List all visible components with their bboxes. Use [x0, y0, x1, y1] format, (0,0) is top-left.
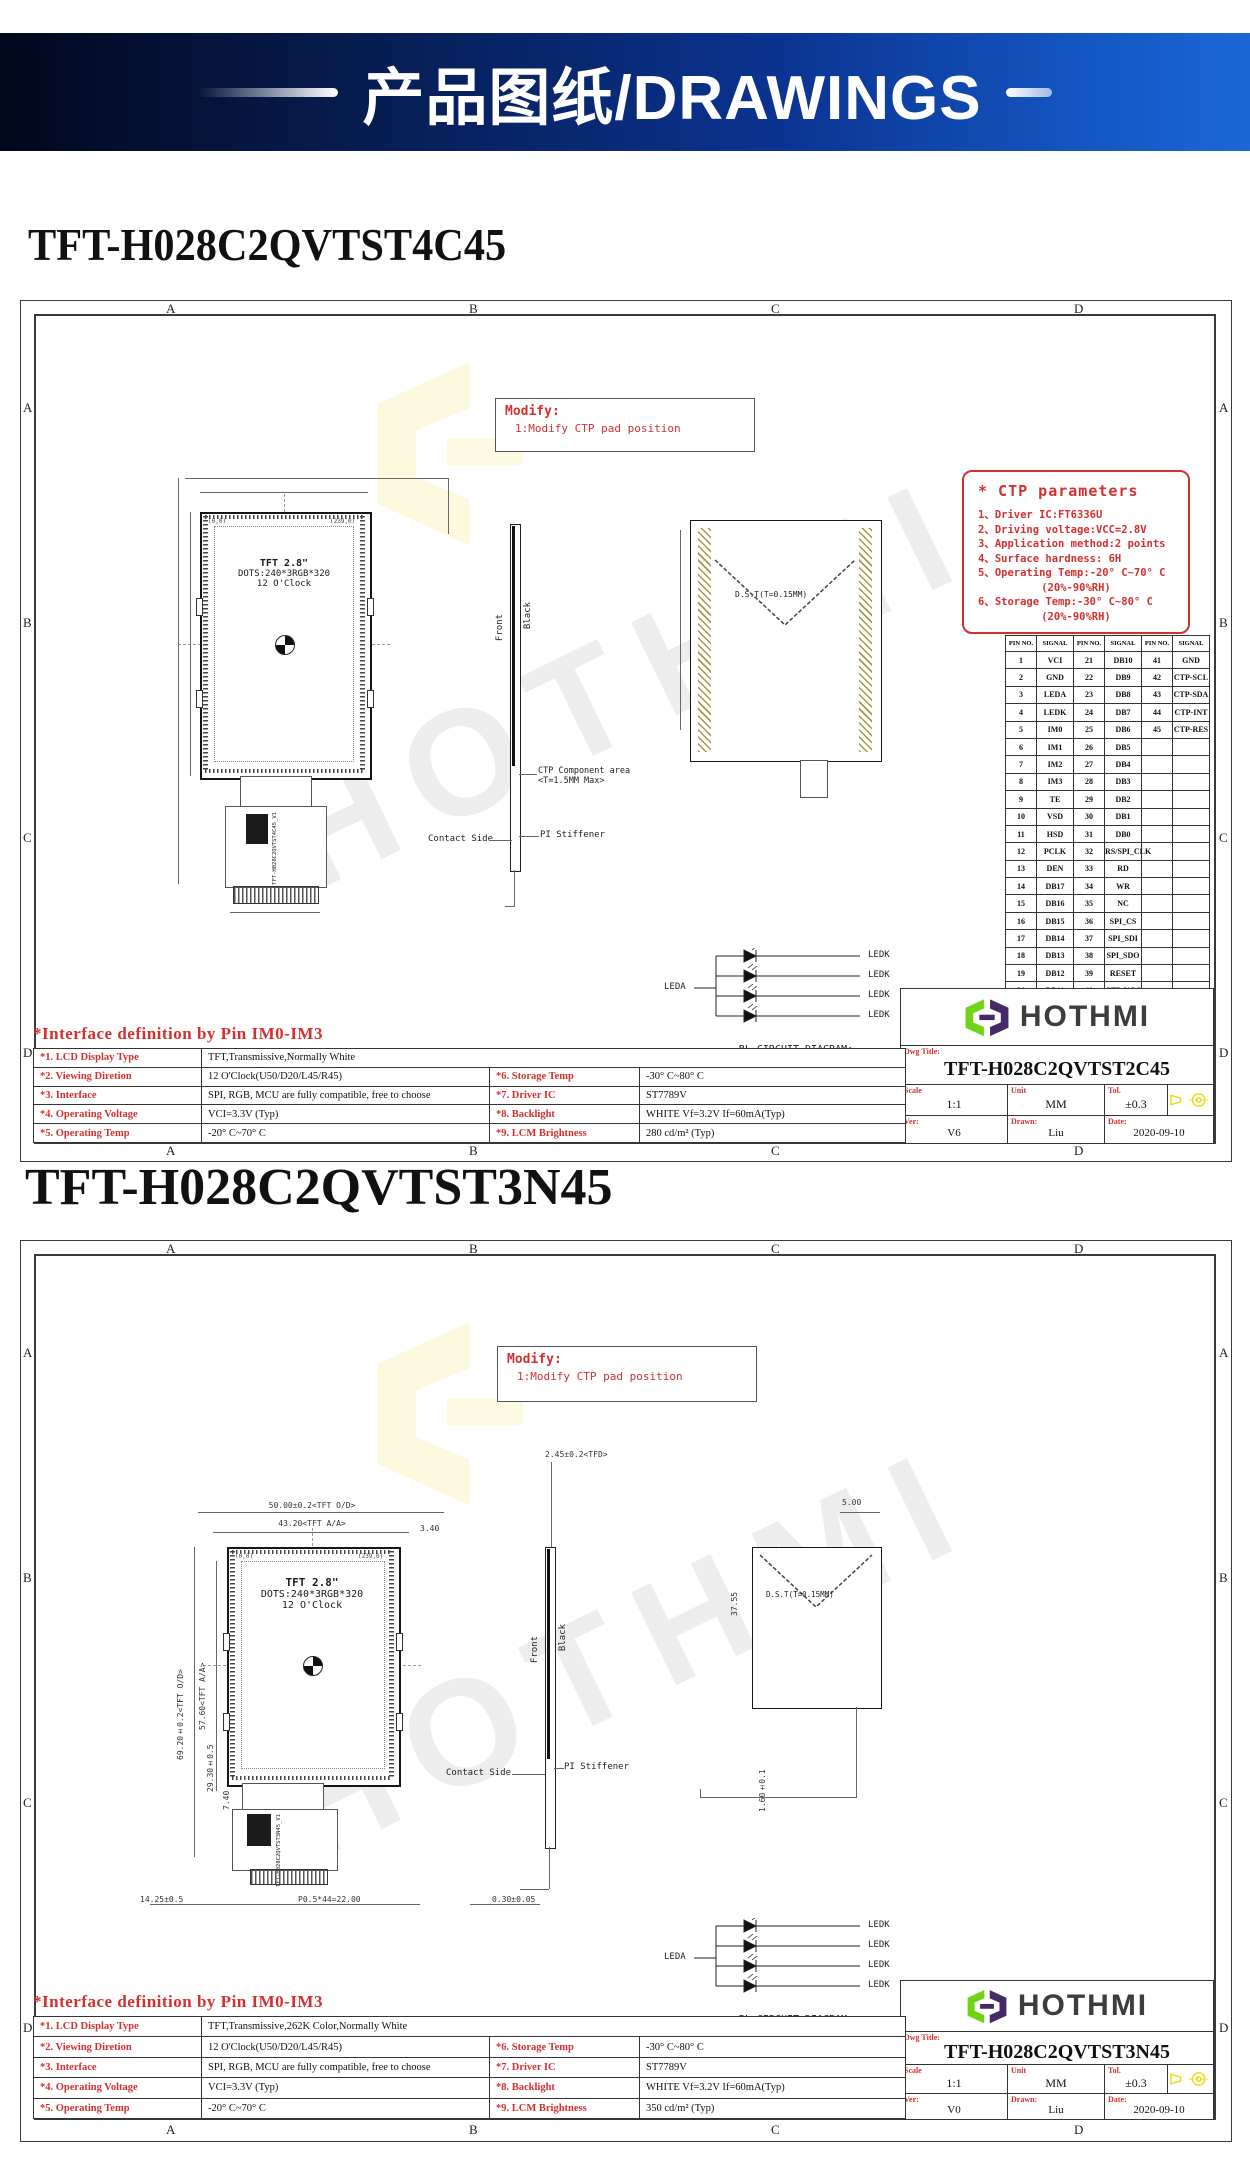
dim-fpc-height: 29.30±0.5	[206, 1722, 215, 1792]
dim-aa-height: 57.60<TFT A/A>	[198, 1600, 207, 1730]
sheet2-title: TFT-H028C2QVTST3N45	[25, 1158, 613, 1217]
sheet2-title-block: HOTHMI Dwg Title: TFT-H028C2QVTST3N45 Sc…	[900, 1980, 1214, 2120]
pi-stiffener-label: PI Stiffener	[564, 1762, 629, 1772]
ledk-label: LEDK	[868, 950, 890, 960]
pin-table-row: 6 IM1 26 DB5	[1006, 738, 1210, 755]
pin-table-row: 13 DEN 33 RD	[1006, 860, 1210, 877]
sheet1-modify-box: Modify: 1:Modify CTP pad position	[495, 398, 755, 452]
dwg-title-value: TFT-H028C2QVTST3N45	[901, 2041, 1213, 2064]
ledk-label: LEDK	[868, 1980, 890, 1990]
black-label: Black	[558, 1624, 568, 1651]
leda-label: LEDA	[664, 982, 686, 992]
bl-circuit-diagram	[692, 1918, 864, 1998]
interface-table-row: *1. LCD Display Type TFT,Transmissive,No…	[34, 1049, 906, 1068]
sheet2-interface-table: *1. LCD Display Type TFT,Transmissive,26…	[33, 2016, 906, 2119]
panel-text: TFT 2.8" DOTS:240*3RGB*320 12 O'Clock	[241, 1576, 383, 1611]
ledk-label: LEDK	[868, 1010, 890, 1020]
brand-name: HOTHMI	[1018, 1989, 1148, 2023]
ctp-parameters-title: * CTP parameters	[978, 482, 1174, 500]
modify-heading: Modify:	[507, 1352, 747, 1367]
sheet1-title: TFT-H028C2QVTST4C45	[28, 218, 506, 271]
ledk-label: LEDK	[868, 1940, 890, 1950]
dim-od-width: 50.00±0.2<TFT O/D>	[212, 1501, 412, 1510]
pin-table-row: 3 LEDA 23 DB8 43 CTP-SDA	[1006, 686, 1210, 703]
sheet2-interface-title: *Interface definition by Pin IM0-IM3	[33, 1992, 323, 2012]
pin-table-row: 9 TE 29 DB2	[1006, 791, 1210, 808]
interface-table-row: *4. Operating Voltage VCI=3.3V (Typ) *8.…	[34, 1105, 906, 1124]
pin-table-row: 19 DB12 39 RESET	[1006, 965, 1210, 982]
ctp-parameter-line: 2、Driving voltage:VCC=2.8V	[978, 523, 1174, 538]
dst-v-line	[752, 1547, 880, 1617]
interface-table-row: *2. Viewing Diretion 12 O'Clock(U50/D20/…	[34, 2037, 906, 2057]
brand-name: HOTHMI	[1020, 1000, 1150, 1034]
modify-note: 1:Modify CTP pad position	[515, 422, 745, 435]
dim-fpc-offset: 7.40	[222, 1770, 231, 1810]
dim-od-height: 69.20±0.2<TFT O/D>	[176, 1590, 185, 1760]
dwg-title-row: Dwg Title: TFT-H028C2QVTST2C45	[901, 1045, 1213, 1084]
dim-connector-offset: 14.25±0.5	[140, 1895, 183, 1904]
pin-table-row: 16 DB15 36 SPI_CS	[1006, 912, 1210, 929]
banner-dash-right	[1006, 88, 1052, 97]
interface-table-row: *5. Operating Temp -20° C~70° C *9. LCM …	[34, 1124, 906, 1143]
pin-table-header: PIN NO. SIGNAL PIN NO. SIGNAL PIN NO. SI…	[1006, 636, 1210, 652]
dwg-title-value: TFT-H028C2QVTST2C45	[901, 1058, 1213, 1081]
pin-table-row: 14 DB17 34 WR	[1006, 878, 1210, 895]
dim-gap-right: 3.40	[420, 1524, 439, 1533]
ctp-parameter-line: (20%-90%RH)	[978, 581, 1174, 596]
dim-va-height: 37.55	[730, 1556, 739, 1616]
pixel-corner-label: (239,0)	[358, 1553, 383, 1560]
ctp-parameters-list: 1、Driver IC:FT6336U 2、Driving voltage:VC…	[978, 508, 1174, 624]
pin-table-row: 4 LEDK 24 DB7 44 CTP-INT	[1006, 704, 1210, 721]
dst-label: D.S.T(T=0.15MM)	[735, 590, 807, 599]
pin-table-row: 11 HSD 31 DB0	[1006, 825, 1210, 842]
sheet2-modify-box: Modify: 1:Modify CTP pad position	[497, 1346, 757, 1402]
pixel-origin-label: (0,0)	[208, 518, 226, 525]
scale-row: Scale1:1 UnitMM Tol.±0.3	[901, 1084, 1213, 1115]
interface-table-row: *4. Operating Voltage VCI=3.3V (Typ) *8.…	[34, 2078, 906, 2098]
center-mark	[275, 635, 295, 655]
pin-table-row: 10 VSD 30 DB1	[1006, 808, 1210, 825]
interface-table-row: *3. Interface SPI, RGB, MCU are fully co…	[34, 1086, 906, 1105]
back-view-fpc-tail	[800, 760, 828, 798]
fpc-connector	[250, 1869, 328, 1885]
version-row: Ver:V6 Drawn:Liu Date:2020-09-10	[901, 1115, 1213, 1143]
pin-signal-table: PIN NO. SIGNAL PIN NO. SIGNAL PIN NO. SI…	[1005, 635, 1210, 1000]
pin-table-row: 17 DB14 37 SPI_SDI	[1006, 930, 1210, 947]
page-banner: 产品图纸/DRAWINGS	[0, 33, 1250, 151]
sheet1-title-block: HOTHMI Dwg Title: TFT-H028C2QVTST2C45 Sc…	[900, 988, 1214, 1144]
pixel-corner-label: (239,0)	[330, 518, 355, 525]
logo-row: HOTHMI	[901, 989, 1213, 1045]
pin-table-row: 5 IM0 25 DB6 45 CTP-RES	[1006, 721, 1210, 738]
fpc-part-label: TFT-H028C2QVTST4C45_V1	[272, 812, 278, 885]
black-label: Black	[523, 602, 533, 629]
logo-row: HOTHMI	[901, 1981, 1213, 2031]
modify-note: 1:Modify CTP pad position	[517, 1370, 747, 1383]
ledk-label: LEDK	[868, 970, 890, 980]
front-label: Front	[495, 614, 505, 641]
pin-table-row: 18 DB13 38 SPI_SDO	[1006, 947, 1210, 964]
sheet1-interface-table: *1. LCD Display Type TFT,Transmissive,No…	[33, 1048, 906, 1143]
dim-fpc-thickness: 0.30±0.05	[492, 1895, 535, 1904]
pin-table-row: 7 IM2 27 DB4	[1006, 756, 1210, 773]
bl-circuit-diagram	[692, 948, 864, 1028]
pin-table-row: 2 GND 22 DB9 42 CTP-SCL	[1006, 669, 1210, 686]
ctp-parameter-line: 5、Operating Temp:-20° C~70° C	[978, 566, 1174, 581]
dim-tail: 1.60±0.1	[758, 1752, 767, 1812]
ctp-parameter-line: (20%-90%RH)	[978, 610, 1174, 625]
projection-symbol-icon	[1169, 1092, 1213, 1108]
hothmi-logo-icon	[966, 1988, 1008, 2024]
ledk-label: LEDK	[868, 1920, 890, 1930]
interface-table-row: *3. Interface SPI, RGB, MCU are fully co…	[34, 2057, 906, 2077]
pin-table-row: 8 IM3 28 DB3	[1006, 773, 1210, 790]
hothmi-logo-icon	[964, 997, 1010, 1037]
scale-row: Scale1:1 UnitMM Tol.±0.3	[901, 2064, 1213, 2093]
interface-table-row: *5. Operating Temp -20° C~70° C *9. LCM …	[34, 2098, 906, 2118]
contact-side-label: Contact Side	[428, 834, 493, 844]
ctp-parameter-line: 6、Storage Temp:-30° C~80° C	[978, 595, 1174, 610]
ledk-label: LEDK	[868, 1960, 890, 1970]
dst-v-line	[690, 520, 880, 760]
fpc-connector	[233, 886, 319, 904]
fpc-neck	[240, 776, 312, 808]
center-mark	[303, 1656, 323, 1676]
dim-top-gap: 5.00	[842, 1498, 861, 1507]
ledk-label: LEDK	[868, 990, 890, 1000]
fpc-neck	[242, 1783, 324, 1811]
driver-ic	[246, 814, 268, 844]
pi-stiffener-label: PI Stiffener	[540, 830, 605, 840]
banner-title: 产品图纸/DRAWINGS	[362, 47, 981, 137]
panel-text: TFT 2.8" DOTS:240*3RGB*320 12 O'Clock	[214, 558, 354, 589]
ctp-parameter-line: 3、Application method:2 points	[978, 537, 1174, 552]
ctp-area-note: CTP Component area <T=1.5MM Max>	[538, 766, 630, 786]
pin-table-row: 12 PCLK 32 RS/SPI_CLK	[1006, 843, 1210, 860]
projection-symbol-icon	[1169, 2071, 1213, 2087]
dim-pin-pitch: P0.5*44=22.00	[298, 1895, 361, 1904]
dim-tfd: 2.45±0.2<TFD>	[545, 1450, 608, 1459]
dst-label: D.S.T(T=0.15MM)	[766, 1590, 834, 1599]
ctp-parameter-line: 4、Surface hardness: 6H	[978, 552, 1174, 567]
version-row: Ver:V0 Drawn:Liu Date:2020-09-10	[901, 2093, 1213, 2119]
sheet2-watermark-logo	[370, 1290, 600, 1530]
modify-heading: Modify:	[505, 404, 745, 419]
ctp-parameter-line: 1、Driver IC:FT6336U	[978, 508, 1174, 523]
pixel-origin-label: (0,0)	[235, 1553, 253, 1560]
ctp-parameters-box: * CTP parameters 1、Driver IC:FT6336U 2、D…	[962, 470, 1190, 634]
contact-side-label: Contact Side	[446, 1768, 511, 1778]
pin-table-row: 15 DB16 35 NC	[1006, 895, 1210, 912]
dwg-title-row: Dwg Title: TFT-H028C2QVTST3N45	[901, 2031, 1213, 2064]
driver-ic	[247, 1814, 271, 1846]
interface-table-row: *1. LCD Display Type TFT,Transmissive,26…	[34, 2017, 906, 2037]
leda-label: LEDA	[664, 1952, 686, 1962]
banner-dash-left	[198, 88, 338, 97]
interface-table-row: *2. Viewing Diretion 12 O'Clock(U50/D20/…	[34, 1067, 906, 1086]
sheet1-interface-title: *Interface definition by Pin IM0-IM3	[33, 1024, 323, 1044]
dim-aa-width: 43.20<TFT A/A>	[227, 1519, 397, 1528]
front-label: Front	[530, 1636, 540, 1663]
pin-table-row: 1 VCI 21 DB10 41 GND	[1006, 652, 1210, 669]
